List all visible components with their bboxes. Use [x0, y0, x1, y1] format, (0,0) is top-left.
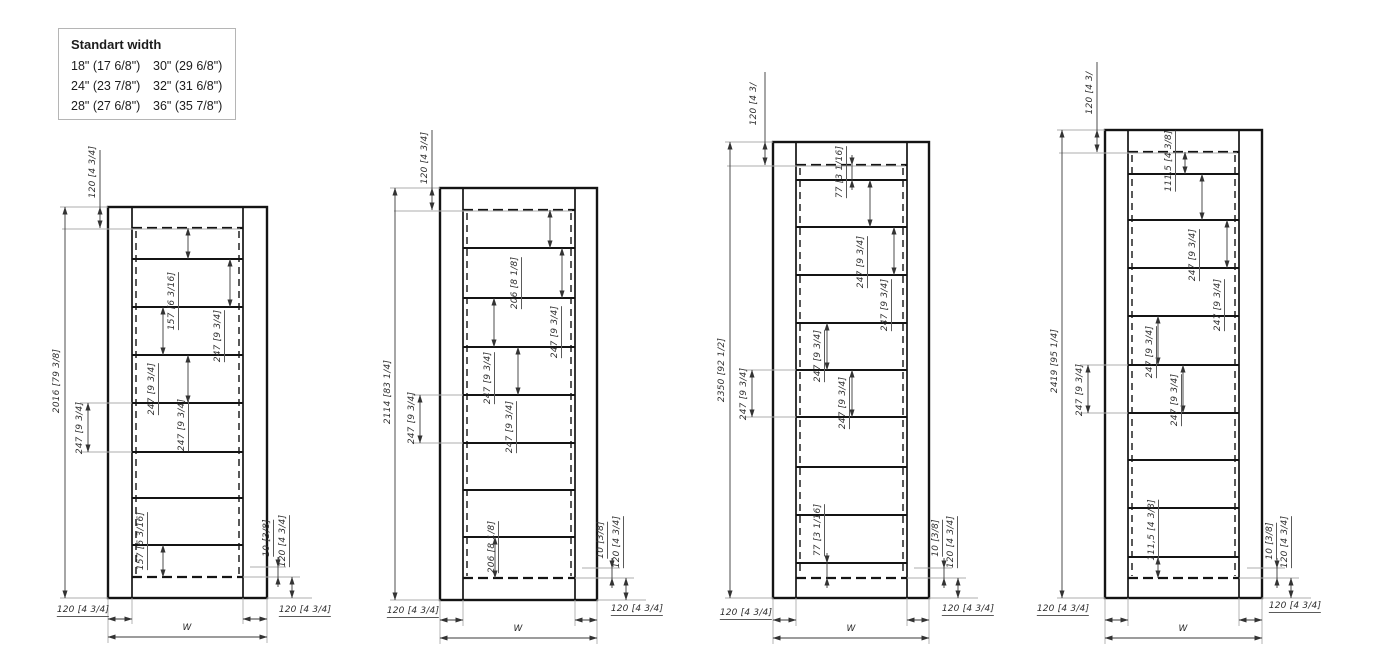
technical-drawing-page: 120 [4 3/4]2016 [79 3/8]247 [9 3/4]157 [… — [0, 0, 1400, 670]
width-option: 28" (27 6/8") — [71, 96, 153, 116]
width-option: 24" (23 7/8") — [71, 76, 153, 96]
legend-row: 28" (27 6/8") 36" (35 7/8") — [71, 96, 235, 116]
legend-title: Standart width — [71, 37, 235, 52]
width-option: 30" (29 6/8") — [153, 56, 235, 76]
cabinet-elevation-2350 — [725, 72, 978, 644]
cabinet-elevation-2016 — [60, 150, 312, 643]
legend-row: 24" (23 7/8") 32" (31 6/8") — [71, 76, 235, 96]
width-option: 32" (31 6/8") — [153, 76, 235, 96]
cabinet-elevation-2419 — [1057, 62, 1311, 644]
width-option: 18" (17 6/8") — [71, 56, 153, 76]
standard-width-legend: Standart width 18" (17 6/8") 30" (29 6/8… — [58, 28, 236, 120]
cabinet-elevation-2114 — [390, 130, 646, 644]
legend-row: 18" (17 6/8") 30" (29 6/8") — [71, 56, 235, 76]
width-option: 36" (35 7/8") — [153, 96, 235, 116]
